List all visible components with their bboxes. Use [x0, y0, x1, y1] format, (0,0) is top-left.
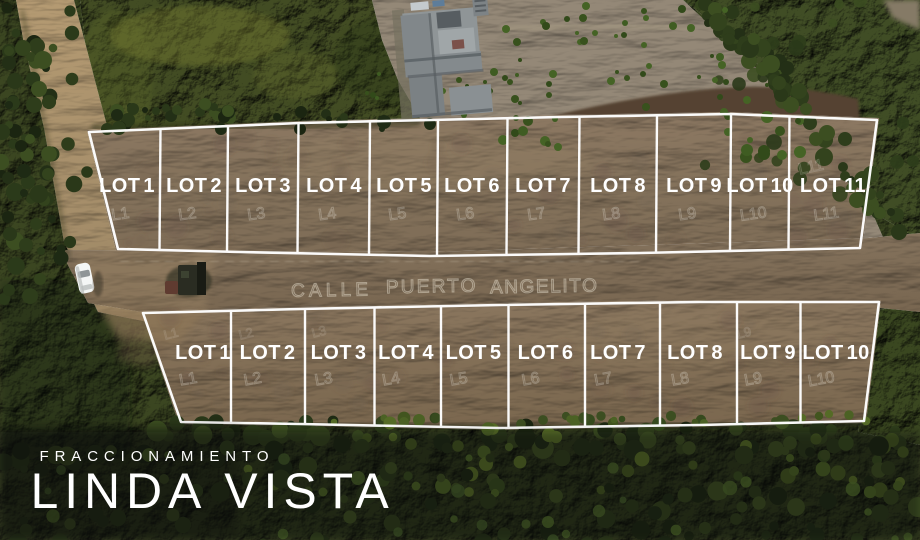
- svg-text:LOT4: LOT4: [306, 175, 362, 197]
- svg-text:LOT5: LOT5: [446, 342, 502, 364]
- svg-text:LOT2: LOT2: [166, 175, 222, 197]
- svg-text:ANGELITO: ANGELITO: [490, 276, 599, 299]
- svg-text:L7: L7: [593, 370, 614, 390]
- svg-text:L9: L9: [677, 205, 697, 224]
- svg-text:LOT7: LOT7: [590, 342, 646, 364]
- svg-text:CALLE: CALLE: [291, 279, 373, 301]
- svg-text:LOT1: LOT1: [175, 342, 231, 364]
- svg-text:L4: L4: [381, 370, 402, 390]
- svg-text:L2: L2: [177, 205, 197, 224]
- svg-text:L2: L2: [242, 370, 263, 390]
- svg-text:L5: L5: [448, 370, 469, 390]
- svg-text:LOT10: LOT10: [802, 342, 869, 364]
- svg-text:L8: L8: [670, 370, 691, 390]
- svg-text:L1: L1: [178, 370, 199, 390]
- svg-text:LOT5: LOT5: [376, 175, 432, 197]
- svg-text:LOT8: LOT8: [590, 175, 646, 197]
- svg-text:L3: L3: [246, 205, 266, 224]
- svg-text:LOT3: LOT3: [311, 342, 367, 364]
- svg-text:LOT7: LOT7: [515, 175, 571, 197]
- svg-text:L8: L8: [601, 205, 621, 224]
- svg-text:LOT4: LOT4: [378, 342, 434, 364]
- svg-text:L4: L4: [317, 205, 337, 224]
- svg-text:L11: L11: [813, 204, 841, 224]
- svg-text:PUERTO: PUERTO: [386, 276, 478, 299]
- svg-text:LOT11: LOT11: [800, 175, 866, 197]
- svg-text:LOT6: LOT6: [444, 175, 500, 197]
- svg-text:L3: L3: [313, 370, 334, 390]
- svg-text:LOT2: LOT2: [240, 342, 296, 364]
- svg-text:L6: L6: [520, 370, 541, 390]
- svg-text:LOT8: LOT8: [667, 342, 723, 364]
- svg-text:L7: L7: [526, 205, 546, 224]
- svg-text:L5: L5: [387, 205, 407, 224]
- svg-text:LOT3: LOT3: [235, 175, 291, 197]
- svg-text:LOT9: LOT9: [740, 342, 796, 364]
- svg-text:L6: L6: [455, 205, 475, 224]
- svg-text:L1: L1: [110, 205, 130, 224]
- svg-text:L9: L9: [743, 370, 764, 390]
- svg-text:LOT10: LOT10: [726, 175, 793, 197]
- svg-text:LOT6: LOT6: [518, 342, 574, 364]
- svg-text:LOT1: LOT1: [99, 175, 155, 197]
- svg-text:LOT9: LOT9: [666, 175, 722, 197]
